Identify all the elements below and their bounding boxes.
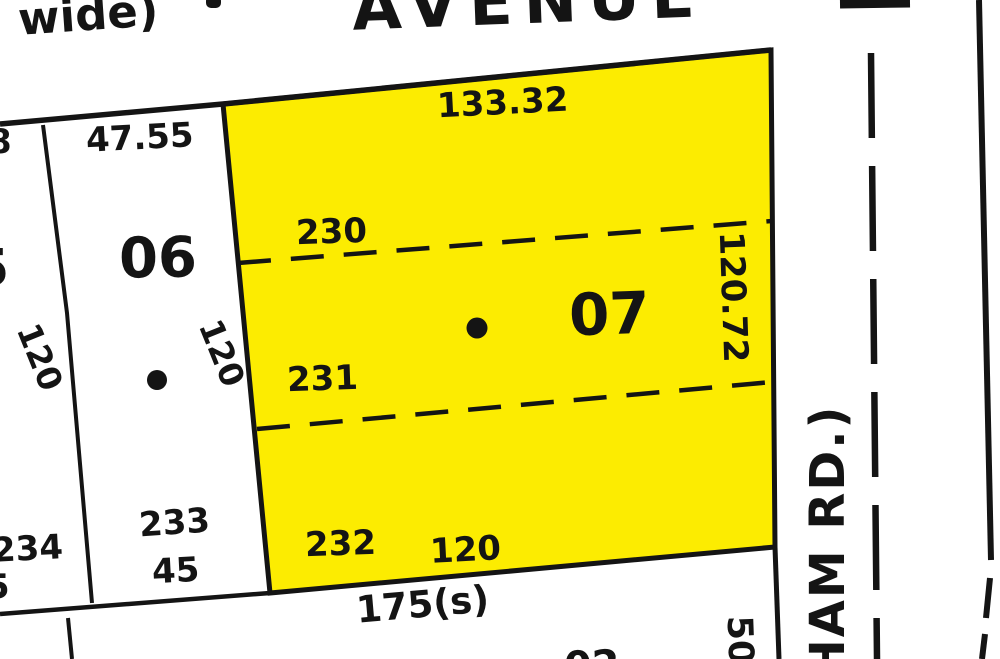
lot-number-230: 230 <box>295 214 367 250</box>
block-number-07: 07 <box>568 284 651 345</box>
clipped-width-fragment-5: 5 <box>0 570 10 604</box>
dimension-width-120-bottom: 120 <box>429 531 502 569</box>
lot-number-234: 234 <box>0 530 64 568</box>
lot-number-232: 232 <box>304 526 376 562</box>
side-road-right-edge-dash-1 <box>986 578 990 618</box>
parcel-06-center-dot <box>147 370 167 390</box>
cadastral-parcel-map: AVENUE wide) HAM RD.) 133.32 230 231 232… <box>0 0 1000 659</box>
dimension-depth-120-72: 120.72 <box>714 231 753 363</box>
parcel-07-highlight <box>223 50 775 593</box>
lower-boundary-line <box>0 593 270 614</box>
street-width-note: wide) <box>17 0 160 42</box>
block-number-06: 06 <box>119 230 198 287</box>
top-letter-fragment <box>206 0 221 8</box>
side-road-right-edge-dash-2 <box>982 634 985 659</box>
parcel-07-center-dot <box>467 318 488 339</box>
dimension-50-rotated: 50 <box>721 615 758 659</box>
dimension-175s: 175(s) <box>355 580 491 628</box>
lot-number-233: 233 <box>138 504 211 543</box>
clipped-lot-number-fragment: 02 <box>563 645 620 659</box>
bottom-left-divider-line <box>68 618 72 659</box>
parcel-right-edge-extension <box>775 547 779 659</box>
dimension-lot-width-45: 45 <box>151 553 200 589</box>
clipped-block-number-fragment-5: 5 <box>0 243 9 295</box>
lot-number-231: 231 <box>286 361 358 397</box>
top-right-line-fragment <box>840 3 910 4</box>
side-road-dashed-centerline <box>871 53 877 659</box>
clipped-number-fragment-8: 8 <box>0 125 12 159</box>
dimension-frontage-47-55: 47.55 <box>85 118 194 158</box>
dimension-frontage-133-32: 133.32 <box>436 83 569 124</box>
side-road-right-edge-line <box>979 0 991 560</box>
side-street-name: HAM RD.) <box>804 405 852 659</box>
